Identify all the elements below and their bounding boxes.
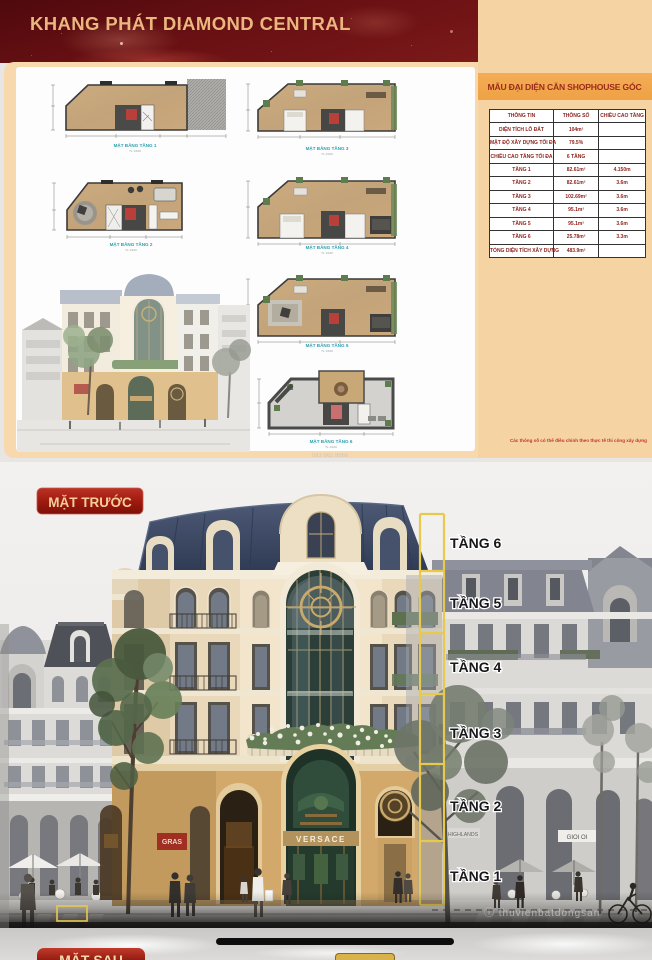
svg-text:MẶT BẰNG TẦNG 4: MẶT BẰNG TẦNG 4 xyxy=(306,243,349,250)
svg-text:MẶT BẰNG TẦNG 6: MẶT BẰNG TẦNG 6 xyxy=(310,437,353,444)
svg-text:093 662 8668: 093 662 8668 xyxy=(312,453,349,459)
svg-text:MẶT TRƯỚC: MẶT TRƯỚC xyxy=(48,495,132,510)
svg-text:MẶT BẰNG TẦNG 5: MẶT BẰNG TẦNG 5 xyxy=(306,341,349,348)
svg-text:TL 1/100: TL 1/100 xyxy=(321,152,333,156)
svg-text:TL 1/100: TL 1/100 xyxy=(325,445,337,449)
svg-text:TL 1/100: TL 1/100 xyxy=(321,251,333,255)
svg-text:TẦNG 6: TẦNG 6 xyxy=(450,535,502,551)
svg-text:TẦNG 2: TẦNG 2 xyxy=(450,798,502,814)
svg-text:MẶT BẰNG TẦNG 2: MẶT BẰNG TẦNG 2 xyxy=(110,240,153,247)
svg-text:GIOI OI: GIOI OI xyxy=(567,835,588,841)
svg-text:MẶT BẰNG TẦNG 1: MẶT BẰNG TẦNG 1 xyxy=(114,141,157,148)
svg-text:TẦNG 4: TẦNG 4 xyxy=(450,659,502,675)
svg-text:GRAS: GRAS xyxy=(162,839,183,846)
svg-text:HIGHLANDS: HIGHLANDS xyxy=(448,832,479,838)
svg-text:TẦNG 5: TẦNG 5 xyxy=(450,595,502,611)
svg-text:MẶT BẰNG TẦNG 3: MẶT BẰNG TẦNG 3 xyxy=(306,144,349,151)
svg-text:VERSACE: VERSACE xyxy=(296,835,346,844)
svg-text:TẦNG 1: TẦNG 1 xyxy=(450,868,502,884)
svg-text:TL 1/100: TL 1/100 xyxy=(321,349,333,353)
svg-text:TẦNG 3: TẦNG 3 xyxy=(450,725,502,741)
svg-text:ⓘ thuvienbatdongsan: ⓘ thuvienbatdongsan xyxy=(484,907,600,919)
svg-text:TL 1/100: TL 1/100 xyxy=(125,248,137,252)
svg-text:TL 1/100: TL 1/100 xyxy=(129,149,141,153)
